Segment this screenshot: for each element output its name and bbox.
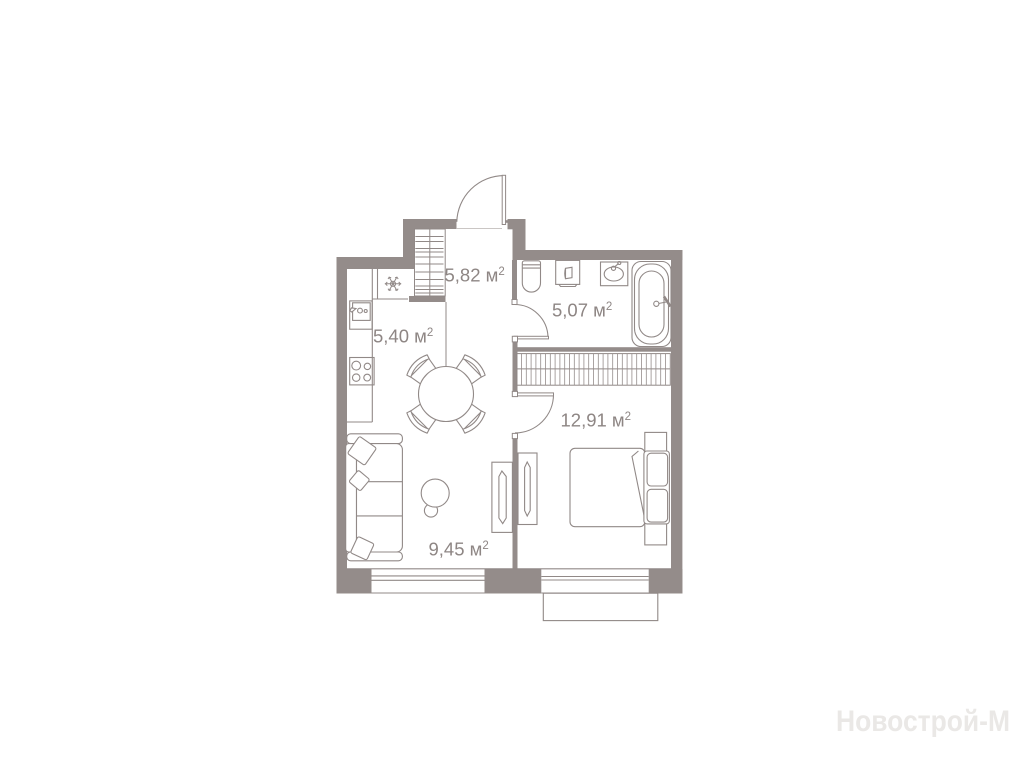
svg-text:Новострой-М: Новострой-М [836,705,1010,738]
svg-text:5,07 м2: 5,07 м2 [552,300,612,321]
svg-text:12,91 м2: 12,91 м2 [561,410,632,431]
svg-text:9,45 м2: 9,45 м2 [429,539,489,560]
svg-text:5,40 м2: 5,40 м2 [373,326,433,347]
svg-text:5,82 м2: 5,82 м2 [445,264,505,285]
